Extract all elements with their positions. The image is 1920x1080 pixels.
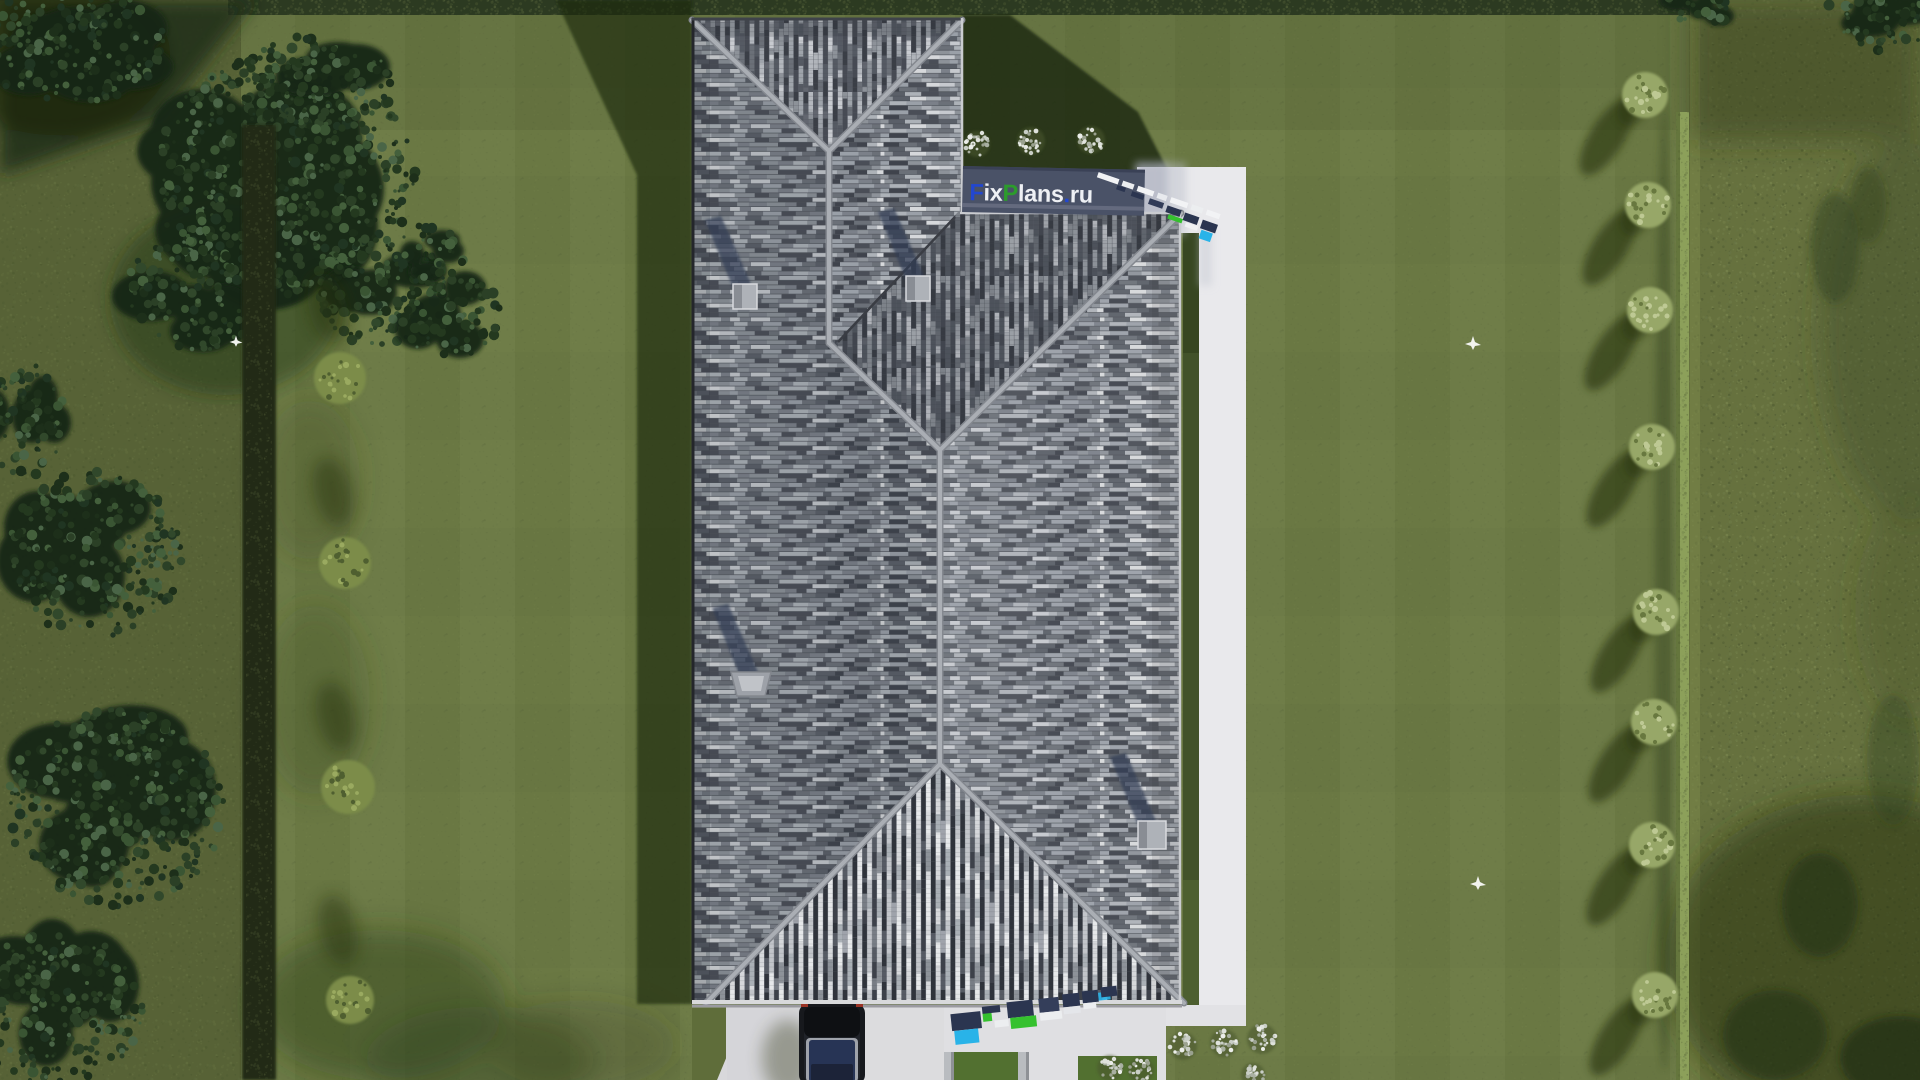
svg-text:FixPlans.ru: FixPlans.ru — [969, 179, 1093, 208]
